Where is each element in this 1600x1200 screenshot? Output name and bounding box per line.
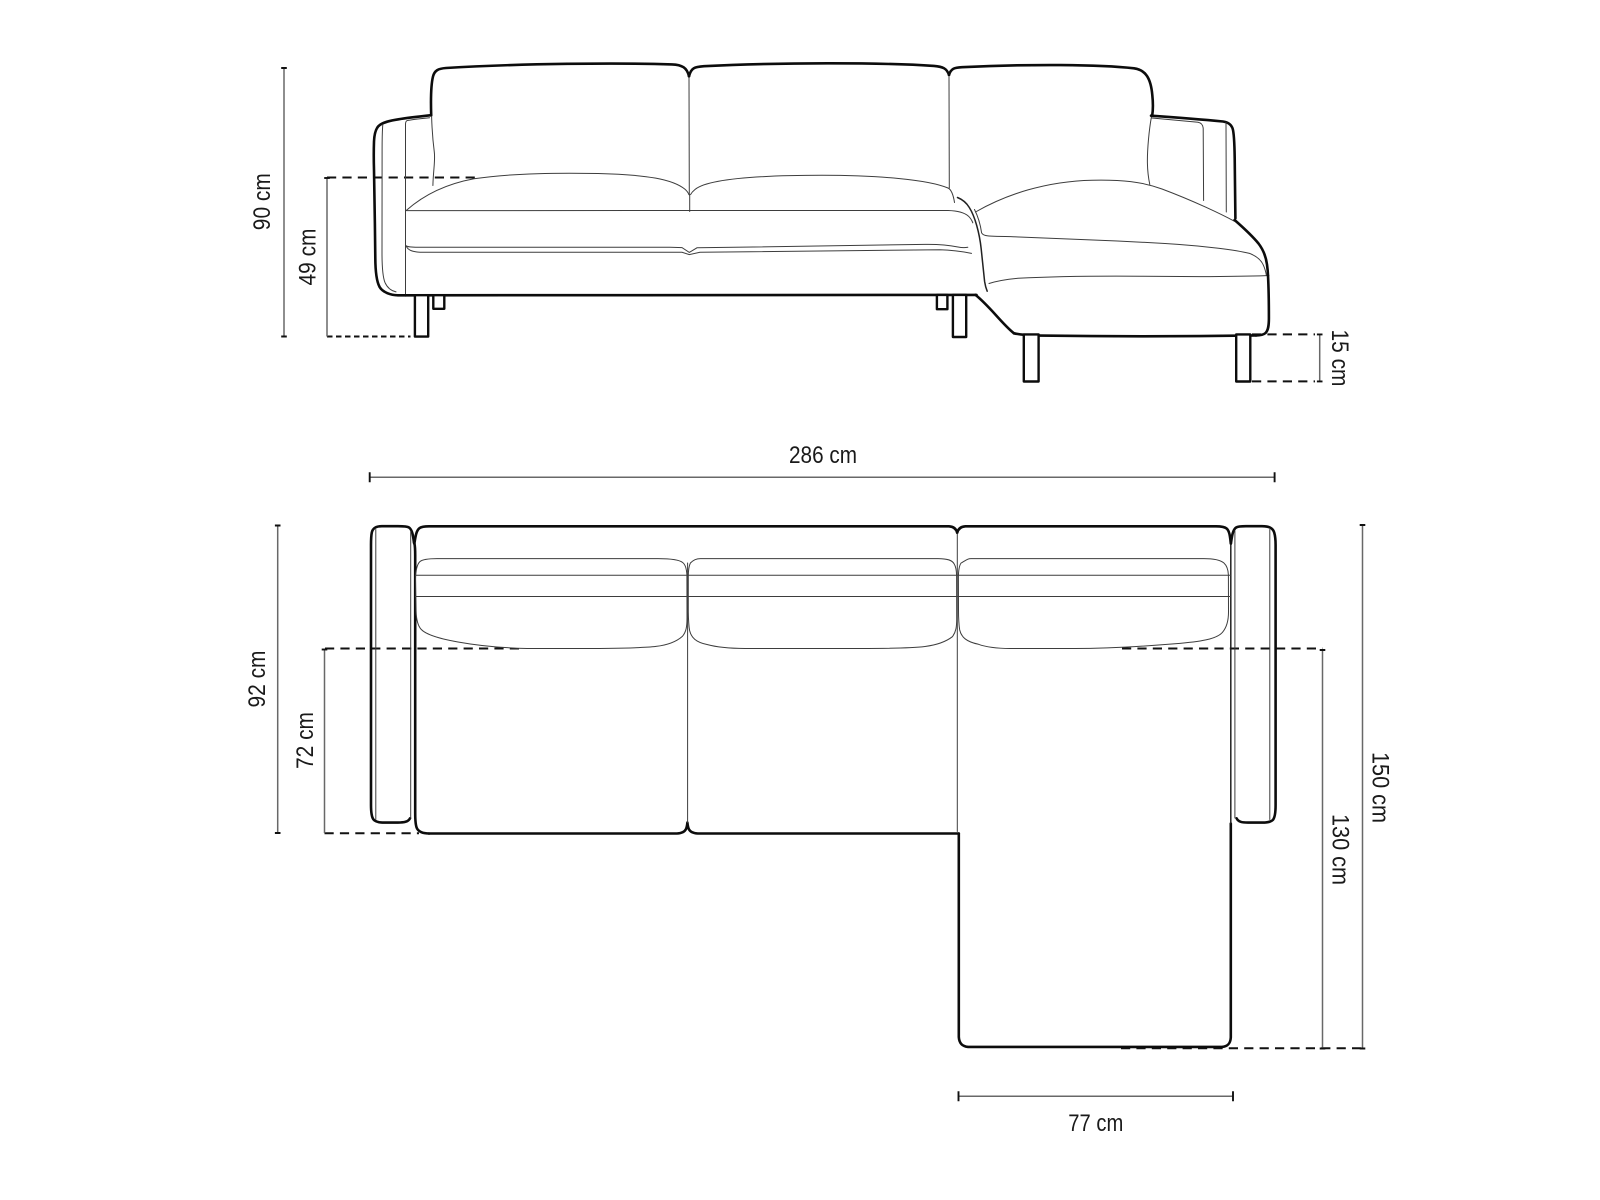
svg-text:130 cm: 130 cm <box>1327 814 1354 885</box>
svg-text:92 cm: 92 cm <box>244 651 271 708</box>
svg-text:77 cm: 77 cm <box>1068 1110 1123 1137</box>
svg-text:150 cm: 150 cm <box>1367 752 1394 823</box>
svg-text:49 cm: 49 cm <box>295 229 322 286</box>
svg-text:72 cm: 72 cm <box>292 712 319 769</box>
svg-text:15 cm: 15 cm <box>1326 330 1353 387</box>
svg-text:90 cm: 90 cm <box>249 173 276 230</box>
svg-text:286 cm: 286 cm <box>789 442 857 469</box>
